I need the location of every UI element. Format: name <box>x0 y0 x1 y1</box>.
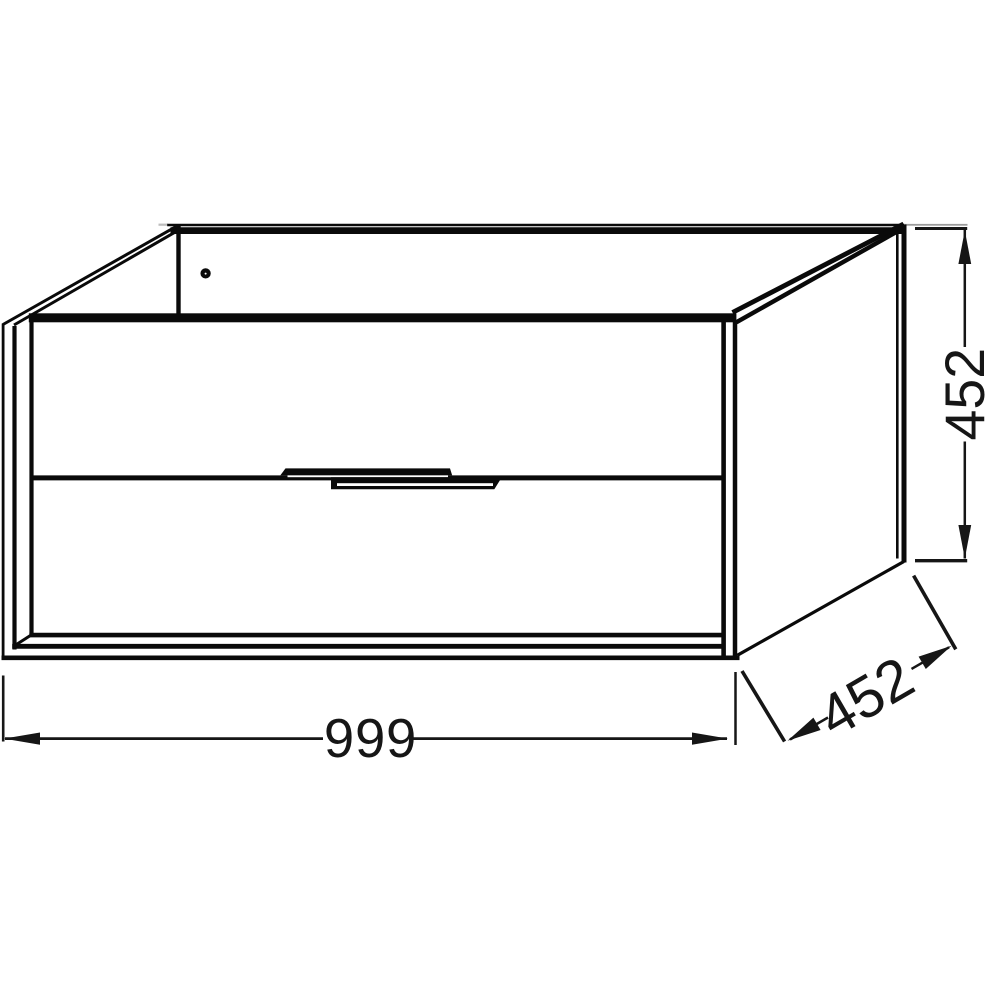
svg-text:452: 452 <box>934 348 996 441</box>
svg-text:999: 999 <box>324 708 417 769</box>
